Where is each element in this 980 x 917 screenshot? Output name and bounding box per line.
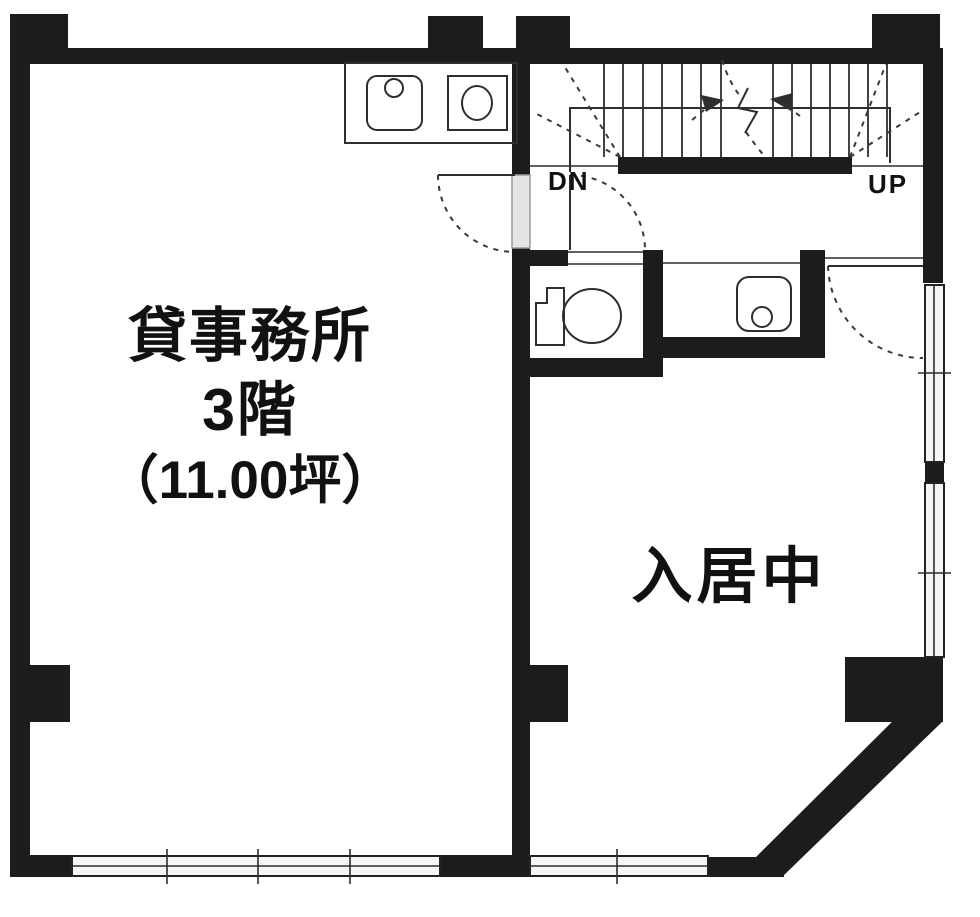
wall-stairhall-stub	[528, 250, 568, 266]
stair-down-label: DN	[548, 165, 590, 198]
kitchen-counter	[345, 63, 517, 143]
office-room-name: 貸事務所	[55, 300, 445, 374]
stove-icon	[448, 76, 507, 130]
toilet-icon	[536, 288, 621, 345]
wall-center-upper	[512, 62, 530, 175]
kitchen-sink-icon	[367, 76, 422, 130]
right-room-label: 入居中	[579, 538, 879, 614]
wall-bottom-left	[10, 855, 72, 877]
door-swing-arc	[438, 175, 515, 252]
wall-right-mid-block	[925, 462, 944, 484]
pillar-center-mid	[530, 665, 568, 722]
pillar-bottom-right	[845, 657, 943, 722]
door-office-to-hall	[438, 175, 530, 252]
floor-plan: 貸事務所 3階 （11.00坪） 入居中 DN UP	[0, 0, 980, 917]
pillar-top-mid-left	[428, 16, 483, 64]
office-room-area: （11.00坪）	[55, 448, 445, 514]
wall-top	[28, 48, 940, 64]
wall-left	[10, 48, 30, 877]
staircase	[530, 60, 923, 174]
pillar-left-mid	[28, 665, 70, 722]
wall-right-upper	[923, 48, 943, 283]
window-right-upper	[918, 285, 951, 462]
stair-up-label: UP	[868, 168, 908, 201]
stair-landing-bar	[618, 157, 852, 174]
wall-center-lower	[512, 248, 530, 877]
doors	[438, 175, 923, 358]
office-room-floor: 3階	[55, 374, 445, 448]
window-right-lower	[918, 483, 951, 657]
wall-toilet-bottom	[517, 358, 663, 377]
office-room-label: 貸事務所 3階 （11.00坪）	[55, 300, 445, 514]
wall-diagonal-corner	[755, 696, 942, 877]
pillar-basin-right	[800, 250, 825, 358]
window-bottom-office	[72, 849, 440, 884]
door-swing-arc	[828, 266, 923, 358]
window-bottom-right-room	[530, 849, 708, 884]
door-right-room	[825, 258, 923, 358]
washbasin-icon	[663, 263, 800, 331]
wall-basin-bottom	[658, 337, 818, 358]
pillar-top-mid-right	[516, 16, 570, 64]
